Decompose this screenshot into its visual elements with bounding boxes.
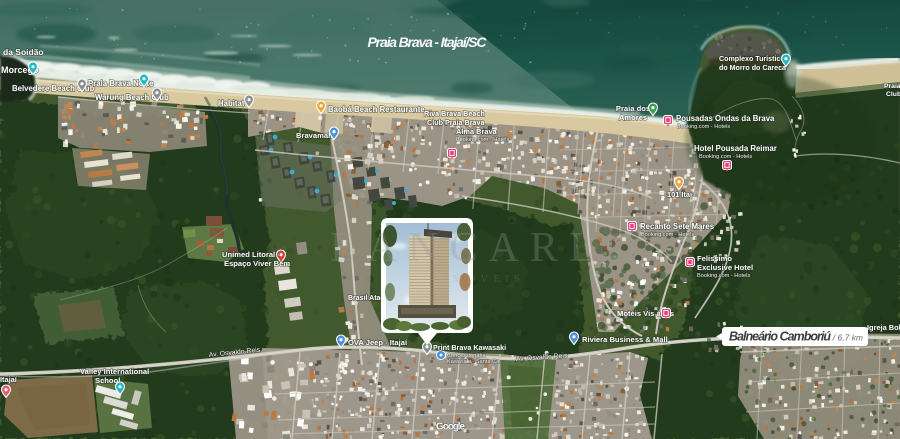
svg-text:Brasil Atac: Brasil Atac xyxy=(348,295,384,302)
svg-text:Complexo Turístico: Complexo Turístico xyxy=(719,55,785,63)
svg-text:da Soidão: da Soidão xyxy=(3,47,44,57)
svg-text:/ 6,7 km: / 6,7 km xyxy=(832,333,863,343)
svg-text:Riva Brava Beach: Riva Brava Beach xyxy=(424,109,485,118)
svg-text:Exclusive Hotel: Exclusive Hotel xyxy=(697,263,753,272)
svg-text:Praia B: Praia B xyxy=(884,83,900,90)
svg-text:Club Pr: Club Pr xyxy=(886,91,900,98)
svg-text:OVA Jeep - Itajaí: OVA Jeep - Itajaí xyxy=(348,338,408,347)
svg-text:Booking.com - Hotels: Booking.com - Hotels xyxy=(697,273,750,279)
svg-text:Igreja Bola: Igreja Bola xyxy=(867,323,900,332)
svg-text:Amores: Amores xyxy=(619,113,647,122)
svg-text:Unimed Litoral -: Unimed Litoral - xyxy=(222,250,280,259)
svg-text:Valley International: Valley International xyxy=(80,367,149,376)
svg-text:Kawasaki - Santa Ca: Kawasaki - Santa Ca xyxy=(447,359,500,365)
svg-text:Hotel Pousada Reimar: Hotel Pousada Reimar xyxy=(694,144,777,153)
svg-text:IMÓVEIS: IMÓVEIS xyxy=(444,273,525,285)
svg-text:Bravamall: Bravamall xyxy=(296,131,332,140)
svg-text:do Morro do Careca: do Morro do Careca xyxy=(719,64,786,72)
svg-text:Riviera Business & Mall: Riviera Business & Mall xyxy=(582,335,668,344)
svg-text:Club Praia Brava: Club Praia Brava xyxy=(427,118,486,127)
svg-text:Google: Google xyxy=(436,422,465,433)
svg-text:Print Brava Kawasaki: Print Brava Kawasaki xyxy=(433,343,506,352)
svg-text:Espaço Viver Bem: Espaço Viver Bem xyxy=(224,259,290,268)
svg-text:Pousadas Ondas da Brava: Pousadas Ondas da Brava xyxy=(676,114,775,123)
svg-text:Balneário Camboriú: Balneário Camboriú xyxy=(729,330,831,344)
svg-text:Alma Brava: Alma Brava xyxy=(456,127,498,136)
svg-text:Praia dos: Praia dos xyxy=(616,104,650,113)
svg-text:Itajaí: Itajaí xyxy=(0,375,18,384)
svg-text:Booking.com - Hotels: Booking.com - Hotels xyxy=(456,137,509,143)
svg-text:Recanto Sete Mares: Recanto Sete Mares xyxy=(640,222,715,231)
svg-text:Felissimo: Felissimo xyxy=(697,254,732,263)
svg-text:Baobá Beach Restaurante: Baobá Beach Restaurante xyxy=(328,105,425,114)
svg-text:Booking.com - Hotels: Booking.com - Hotels xyxy=(641,232,694,238)
svg-text:Booking.com - Hotels: Booking.com - Hotels xyxy=(699,154,752,160)
svg-text:Booking.com - Hotels: Booking.com - Hotels xyxy=(677,124,730,130)
svg-text:101 Itaj: 101 Itaj xyxy=(667,190,692,199)
svg-text:Habitat: Habitat xyxy=(218,99,245,108)
svg-text:Praia Brava - Itajaí/SC: Praia Brava - Itajaí/SC xyxy=(368,34,488,50)
